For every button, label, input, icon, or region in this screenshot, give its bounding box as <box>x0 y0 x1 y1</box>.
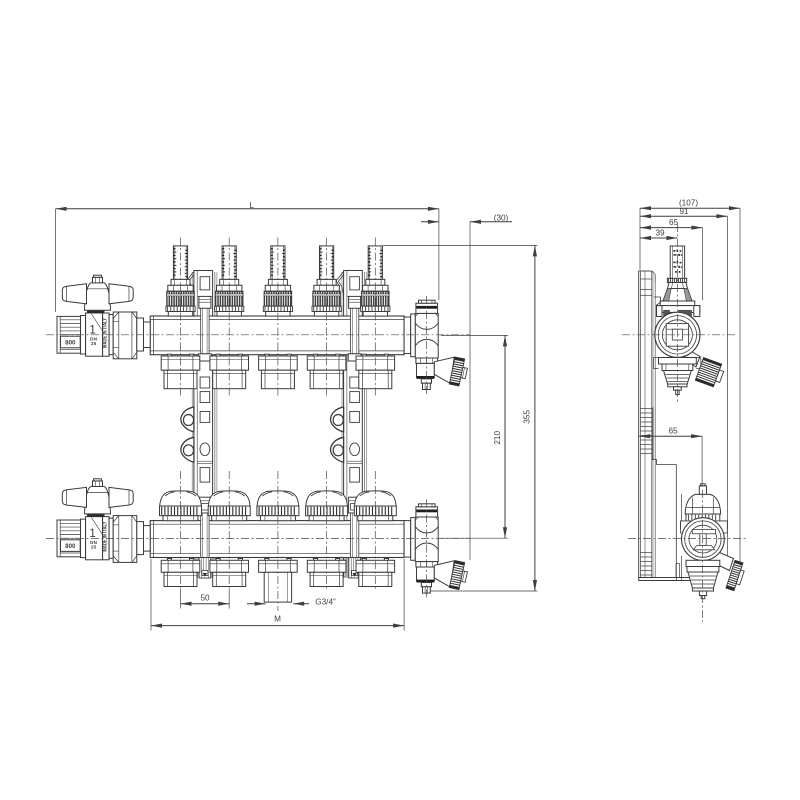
svg-text:G3/4”: G3/4” <box>315 598 336 607</box>
svg-text:M: M <box>274 615 281 624</box>
svg-text:(30): (30) <box>494 214 509 223</box>
svg-text:L: L <box>250 201 255 210</box>
svg-text:800: 800 <box>65 543 76 550</box>
svg-text:800: 800 <box>65 339 76 346</box>
svg-text:210: 210 <box>493 431 502 445</box>
svg-text:355: 355 <box>523 410 532 424</box>
svg-text:39: 39 <box>655 229 665 238</box>
svg-text:25: 25 <box>91 545 97 550</box>
svg-text:MADE IN ITALY: MADE IN ITALY <box>102 521 108 551</box>
svg-text:50: 50 <box>200 594 210 603</box>
svg-text:91: 91 <box>679 207 689 216</box>
svg-text:25: 25 <box>91 341 97 346</box>
svg-text:65: 65 <box>669 218 679 227</box>
svg-text:65: 65 <box>668 427 678 436</box>
svg-text:MADE IN ITALY: MADE IN ITALY <box>102 318 108 348</box>
